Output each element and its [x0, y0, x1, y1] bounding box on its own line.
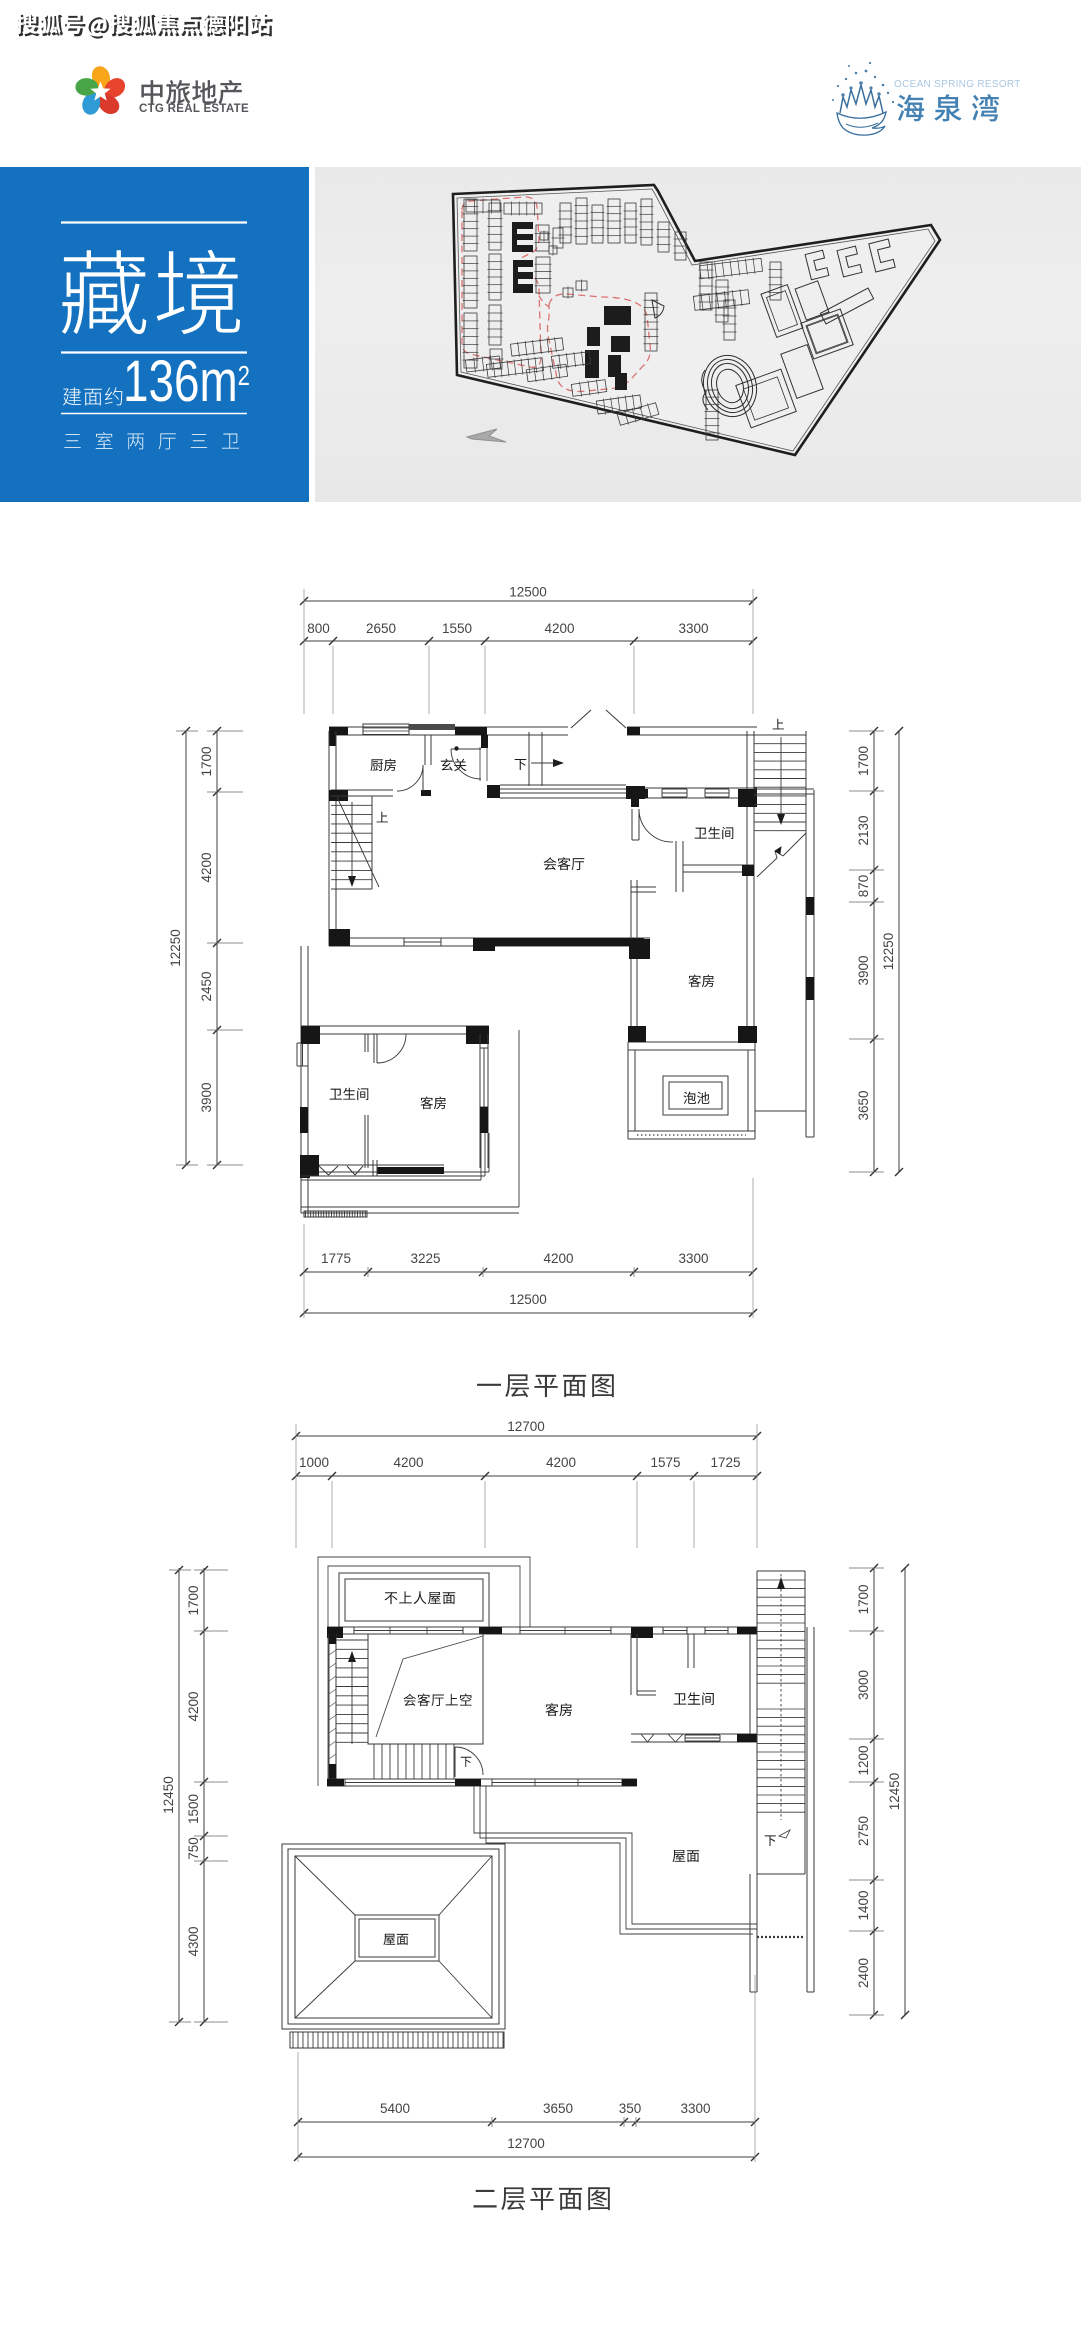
svg-text:750: 750 — [186, 1837, 201, 1860]
svg-text:12450: 12450 — [161, 1776, 176, 1814]
svg-text:1400: 1400 — [856, 1890, 871, 1920]
svg-text:3000: 3000 — [856, 1670, 871, 1700]
svg-text:12500: 12500 — [509, 585, 547, 600]
svg-text:1700: 1700 — [199, 746, 214, 776]
svg-text:3900: 3900 — [199, 1082, 214, 1112]
svg-text:2400: 2400 — [856, 1958, 871, 1988]
svg-text:1000: 1000 — [299, 1455, 329, 1470]
svg-text:1700: 1700 — [856, 1584, 871, 1614]
svg-text:1700: 1700 — [186, 1585, 201, 1615]
svg-text:12700: 12700 — [507, 2136, 545, 2151]
svg-text:3300: 3300 — [678, 621, 708, 636]
svg-text:800: 800 — [307, 621, 330, 636]
svg-text:4200: 4200 — [544, 621, 574, 636]
svg-text:12250: 12250 — [168, 929, 183, 967]
svg-text:1575: 1575 — [650, 1455, 680, 1470]
svg-text:5400: 5400 — [380, 2101, 410, 2116]
svg-text:12500: 12500 — [509, 1292, 547, 1307]
svg-text:3650: 3650 — [543, 2101, 573, 2116]
svg-text:2650: 2650 — [366, 621, 396, 636]
svg-text:4200: 4200 — [543, 1251, 573, 1266]
svg-text:1700: 1700 — [856, 746, 871, 776]
svg-text:1725: 1725 — [710, 1455, 740, 1470]
svg-text:4300: 4300 — [186, 1926, 201, 1956]
svg-text:2750: 2750 — [856, 1816, 871, 1846]
svg-text:1550: 1550 — [442, 621, 472, 636]
svg-text:4200: 4200 — [199, 852, 214, 882]
svg-text:3225: 3225 — [410, 1251, 440, 1266]
svg-text:1500: 1500 — [186, 1794, 201, 1824]
svg-text:1200: 1200 — [856, 1745, 871, 1775]
svg-text:3300: 3300 — [680, 2101, 710, 2116]
svg-text:12700: 12700 — [507, 1419, 545, 1434]
svg-text:870: 870 — [856, 875, 871, 898]
svg-text:4200: 4200 — [186, 1691, 201, 1721]
svg-text:2130: 2130 — [856, 815, 871, 845]
svg-text:350: 350 — [619, 2101, 642, 2116]
svg-text:3900: 3900 — [856, 955, 871, 985]
svg-text:12250: 12250 — [881, 933, 896, 971]
svg-text:4200: 4200 — [393, 1455, 423, 1470]
svg-text:12450: 12450 — [887, 1773, 902, 1811]
svg-text:1775: 1775 — [321, 1251, 351, 1266]
svg-text:3300: 3300 — [678, 1251, 708, 1266]
svg-text:2450: 2450 — [199, 971, 214, 1001]
svg-text:4200: 4200 — [546, 1455, 576, 1470]
svg-text:3650: 3650 — [856, 1090, 871, 1120]
